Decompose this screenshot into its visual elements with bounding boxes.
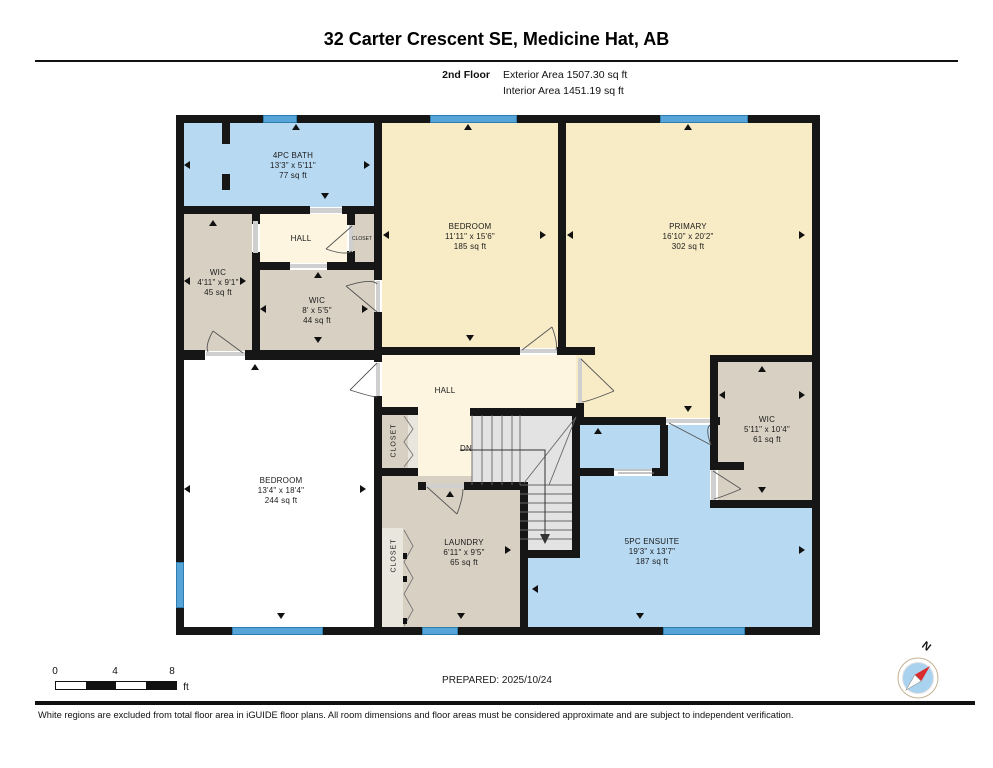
dimension-arrow xyxy=(719,391,725,399)
prepared-date: PREPARED: 2025/10/24 xyxy=(417,675,577,686)
wall-segment xyxy=(184,350,205,360)
scale-tick-0: 0 xyxy=(49,666,61,677)
wall-segment xyxy=(520,550,580,558)
wall-segment xyxy=(557,347,595,355)
compass-icon xyxy=(898,658,938,698)
room-label-laundry: LAUNDRY 6'11" x 9'5" 65 sq ft xyxy=(404,538,524,568)
dimension-arrow xyxy=(758,366,766,372)
room-name: PRIMARY xyxy=(628,222,748,232)
room-label-wic1: WIC 4'11" x 9'1" 45 sq ft xyxy=(178,268,258,298)
room-name: WIC xyxy=(178,268,258,278)
room-name: LAUNDRY xyxy=(404,538,524,548)
room-dims: 16'10" x 20'2" xyxy=(628,232,748,242)
wall-segment xyxy=(580,468,614,476)
room-name: WIC xyxy=(257,296,377,306)
room-area: 44 sq ft xyxy=(257,316,377,326)
room-name: BEDROOM xyxy=(221,476,341,486)
room-area: 45 sq ft xyxy=(178,288,258,298)
dimension-arrow xyxy=(209,220,217,226)
floor-label: 2nd Floor xyxy=(385,69,490,81)
wall-segment xyxy=(710,355,812,362)
window xyxy=(176,562,184,608)
room-label-bath: 4PC BATH 13'3" x 5'11" 77 sq ft xyxy=(233,151,353,181)
dimension-arrow xyxy=(684,406,692,412)
stairs-upper-fill xyxy=(472,415,572,485)
room-name: CLOSET xyxy=(390,411,399,471)
room-area: 187 sq ft xyxy=(592,557,712,567)
scale-tick-4: 4 xyxy=(109,666,121,677)
room-dims: 13'4" x 18'4" xyxy=(221,486,341,496)
door-opening xyxy=(310,208,342,213)
compass-north-label: N xyxy=(919,639,940,659)
room-area: 77 sq ft xyxy=(233,171,353,181)
door-opening xyxy=(578,358,582,403)
dimension-arrow xyxy=(636,613,644,619)
dimension-arrow xyxy=(184,485,190,493)
door-opening xyxy=(290,264,327,268)
room-dims: 4'11" x 9'1" xyxy=(178,278,258,288)
wall-segment xyxy=(464,482,520,490)
window xyxy=(422,627,458,635)
room-dims: 19'3" x 13'7" xyxy=(592,547,712,557)
door-opening xyxy=(666,419,710,423)
room-area: 65 sq ft xyxy=(404,558,524,568)
exterior-area: Exterior Area 1507.30 sq ft xyxy=(503,69,703,81)
wall-segment xyxy=(222,174,230,190)
window xyxy=(663,627,745,635)
dimension-arrow xyxy=(464,124,472,130)
floorplan-page: 32 Carter Crescent SE, Medicine Hat, AB … xyxy=(0,0,993,768)
room-name: DN xyxy=(455,444,477,454)
page-title: 32 Carter Crescent SE, Medicine Hat, AB xyxy=(0,29,993,50)
room-label-center-hall: HALL xyxy=(405,386,485,396)
room-label-primary: PRIMARY 16'10" x 20'2" 302 sq ft xyxy=(628,222,748,252)
wall-segment xyxy=(378,347,520,355)
room-dims: 5'11" x 10'4" xyxy=(707,425,827,435)
scale-unit: ft xyxy=(178,682,194,693)
dimension-arrow xyxy=(799,546,805,554)
dimension-arrow xyxy=(446,491,454,497)
room-area: 61 sq ft xyxy=(707,435,827,445)
room-label-wic-right: WIC 5'11" x 10'4" 61 sq ft xyxy=(707,415,827,445)
wall-segment xyxy=(184,206,310,214)
wall-segment xyxy=(710,500,812,508)
room-name: WIC xyxy=(707,415,827,425)
wall-segment xyxy=(418,482,426,490)
dimension-arrow xyxy=(314,337,322,343)
footer-divider xyxy=(35,701,975,705)
wall-segment xyxy=(176,115,184,635)
room-area: 302 sq ft xyxy=(628,242,748,252)
scale-segment xyxy=(56,682,86,689)
header-divider xyxy=(35,60,958,62)
dimension-arrow xyxy=(532,585,538,593)
room-label-upper-closet: CLOSET xyxy=(347,236,377,242)
door-opening xyxy=(520,349,557,353)
door-opening xyxy=(253,221,258,253)
wall-segment xyxy=(576,417,666,425)
room-label-bedroom-top: BEDROOM 11'11" x 15'6" 185 sq ft xyxy=(410,222,530,252)
dimension-arrow xyxy=(292,124,300,130)
dimension-arrow xyxy=(184,161,190,169)
dimension-arrow xyxy=(466,335,474,341)
room-name: 5PC ENSUITE xyxy=(592,537,712,547)
wall-segment xyxy=(470,408,580,416)
room-dims: 13'3" x 5'11" xyxy=(233,161,353,171)
window xyxy=(660,115,748,123)
dimension-arrow xyxy=(383,231,389,239)
wall-segment xyxy=(558,115,566,347)
dimension-arrow xyxy=(799,231,805,239)
dimension-arrow xyxy=(567,231,573,239)
scale-segment xyxy=(146,682,176,689)
room-ensuite-fill xyxy=(710,508,812,627)
dimension-arrow xyxy=(314,272,322,278)
room-ensuite-fill xyxy=(668,425,710,476)
room-toilet-fill xyxy=(580,425,660,469)
wall-segment xyxy=(374,115,382,280)
room-name: CLOSET xyxy=(390,526,399,586)
wall-segment xyxy=(327,262,375,270)
dimension-arrow xyxy=(758,487,766,493)
dimension-arrow xyxy=(360,485,366,493)
scale-segment xyxy=(116,682,146,689)
door-opening xyxy=(206,352,245,356)
dimension-arrow xyxy=(251,364,259,370)
dimension-arrow xyxy=(457,613,465,619)
wall-segment xyxy=(812,115,820,635)
room-label-closet-b: CLOSET xyxy=(390,526,399,586)
pocket-door xyxy=(614,470,654,473)
scale-bar xyxy=(55,681,177,690)
window xyxy=(232,627,323,635)
room-name: 4PC BATH xyxy=(233,151,353,161)
dimension-arrow xyxy=(540,231,546,239)
window xyxy=(263,115,297,123)
interior-area: Interior Area 1451.19 sq ft xyxy=(503,85,703,97)
door-opening xyxy=(426,484,464,488)
room-area: 244 sq ft xyxy=(221,496,341,506)
room-label-closet-a: CLOSET xyxy=(390,411,399,471)
door-opening xyxy=(376,363,380,396)
room-name: BEDROOM xyxy=(410,222,530,232)
room-label-upper-hall: HALL xyxy=(261,234,341,244)
room-label-ensuite: 5PC ENSUITE 19'3" x 13'7" 187 sq ft xyxy=(592,537,712,567)
room-name: CLOSET xyxy=(347,236,377,242)
dimension-arrow xyxy=(364,161,370,169)
room-label-bedroom-bottom: BEDROOM 13'4" x 18'4" 244 sq ft xyxy=(221,476,341,506)
room-closet-a-front-fill xyxy=(408,415,418,468)
door-opening xyxy=(711,470,716,500)
wall-segment xyxy=(716,462,744,470)
disclaimer-text: White regions are excluded from total fl… xyxy=(38,710,968,720)
dimension-arrow xyxy=(684,124,692,130)
room-area: 185 sq ft xyxy=(410,242,530,252)
wall-segment xyxy=(374,396,382,627)
dimension-arrow xyxy=(321,193,329,199)
room-dims: 6'11" x 9'5" xyxy=(404,548,524,558)
scale-tick-8: 8 xyxy=(166,666,178,677)
room-name: HALL xyxy=(405,386,485,396)
room-center-hall-fill xyxy=(382,355,576,408)
room-name: HALL xyxy=(261,234,341,244)
room-dims: 11'11" x 15'6" xyxy=(410,232,530,242)
wall-segment xyxy=(245,350,375,360)
dimension-arrow xyxy=(594,428,602,434)
wall-segment xyxy=(222,122,230,144)
room-label-wic2: WIC 8' x 5'5" 44 sq ft xyxy=(257,296,377,326)
window xyxy=(430,115,517,123)
dimension-arrow xyxy=(277,613,285,619)
wall-segment xyxy=(652,468,668,476)
stairs-dn-label: DN xyxy=(455,444,477,454)
wall-segment xyxy=(347,213,355,225)
room-dims: 8' x 5'5" xyxy=(257,306,377,316)
wall-segment xyxy=(572,408,580,558)
wall-segment xyxy=(660,425,668,470)
scale-segment xyxy=(86,682,116,689)
dimension-arrow xyxy=(799,391,805,399)
